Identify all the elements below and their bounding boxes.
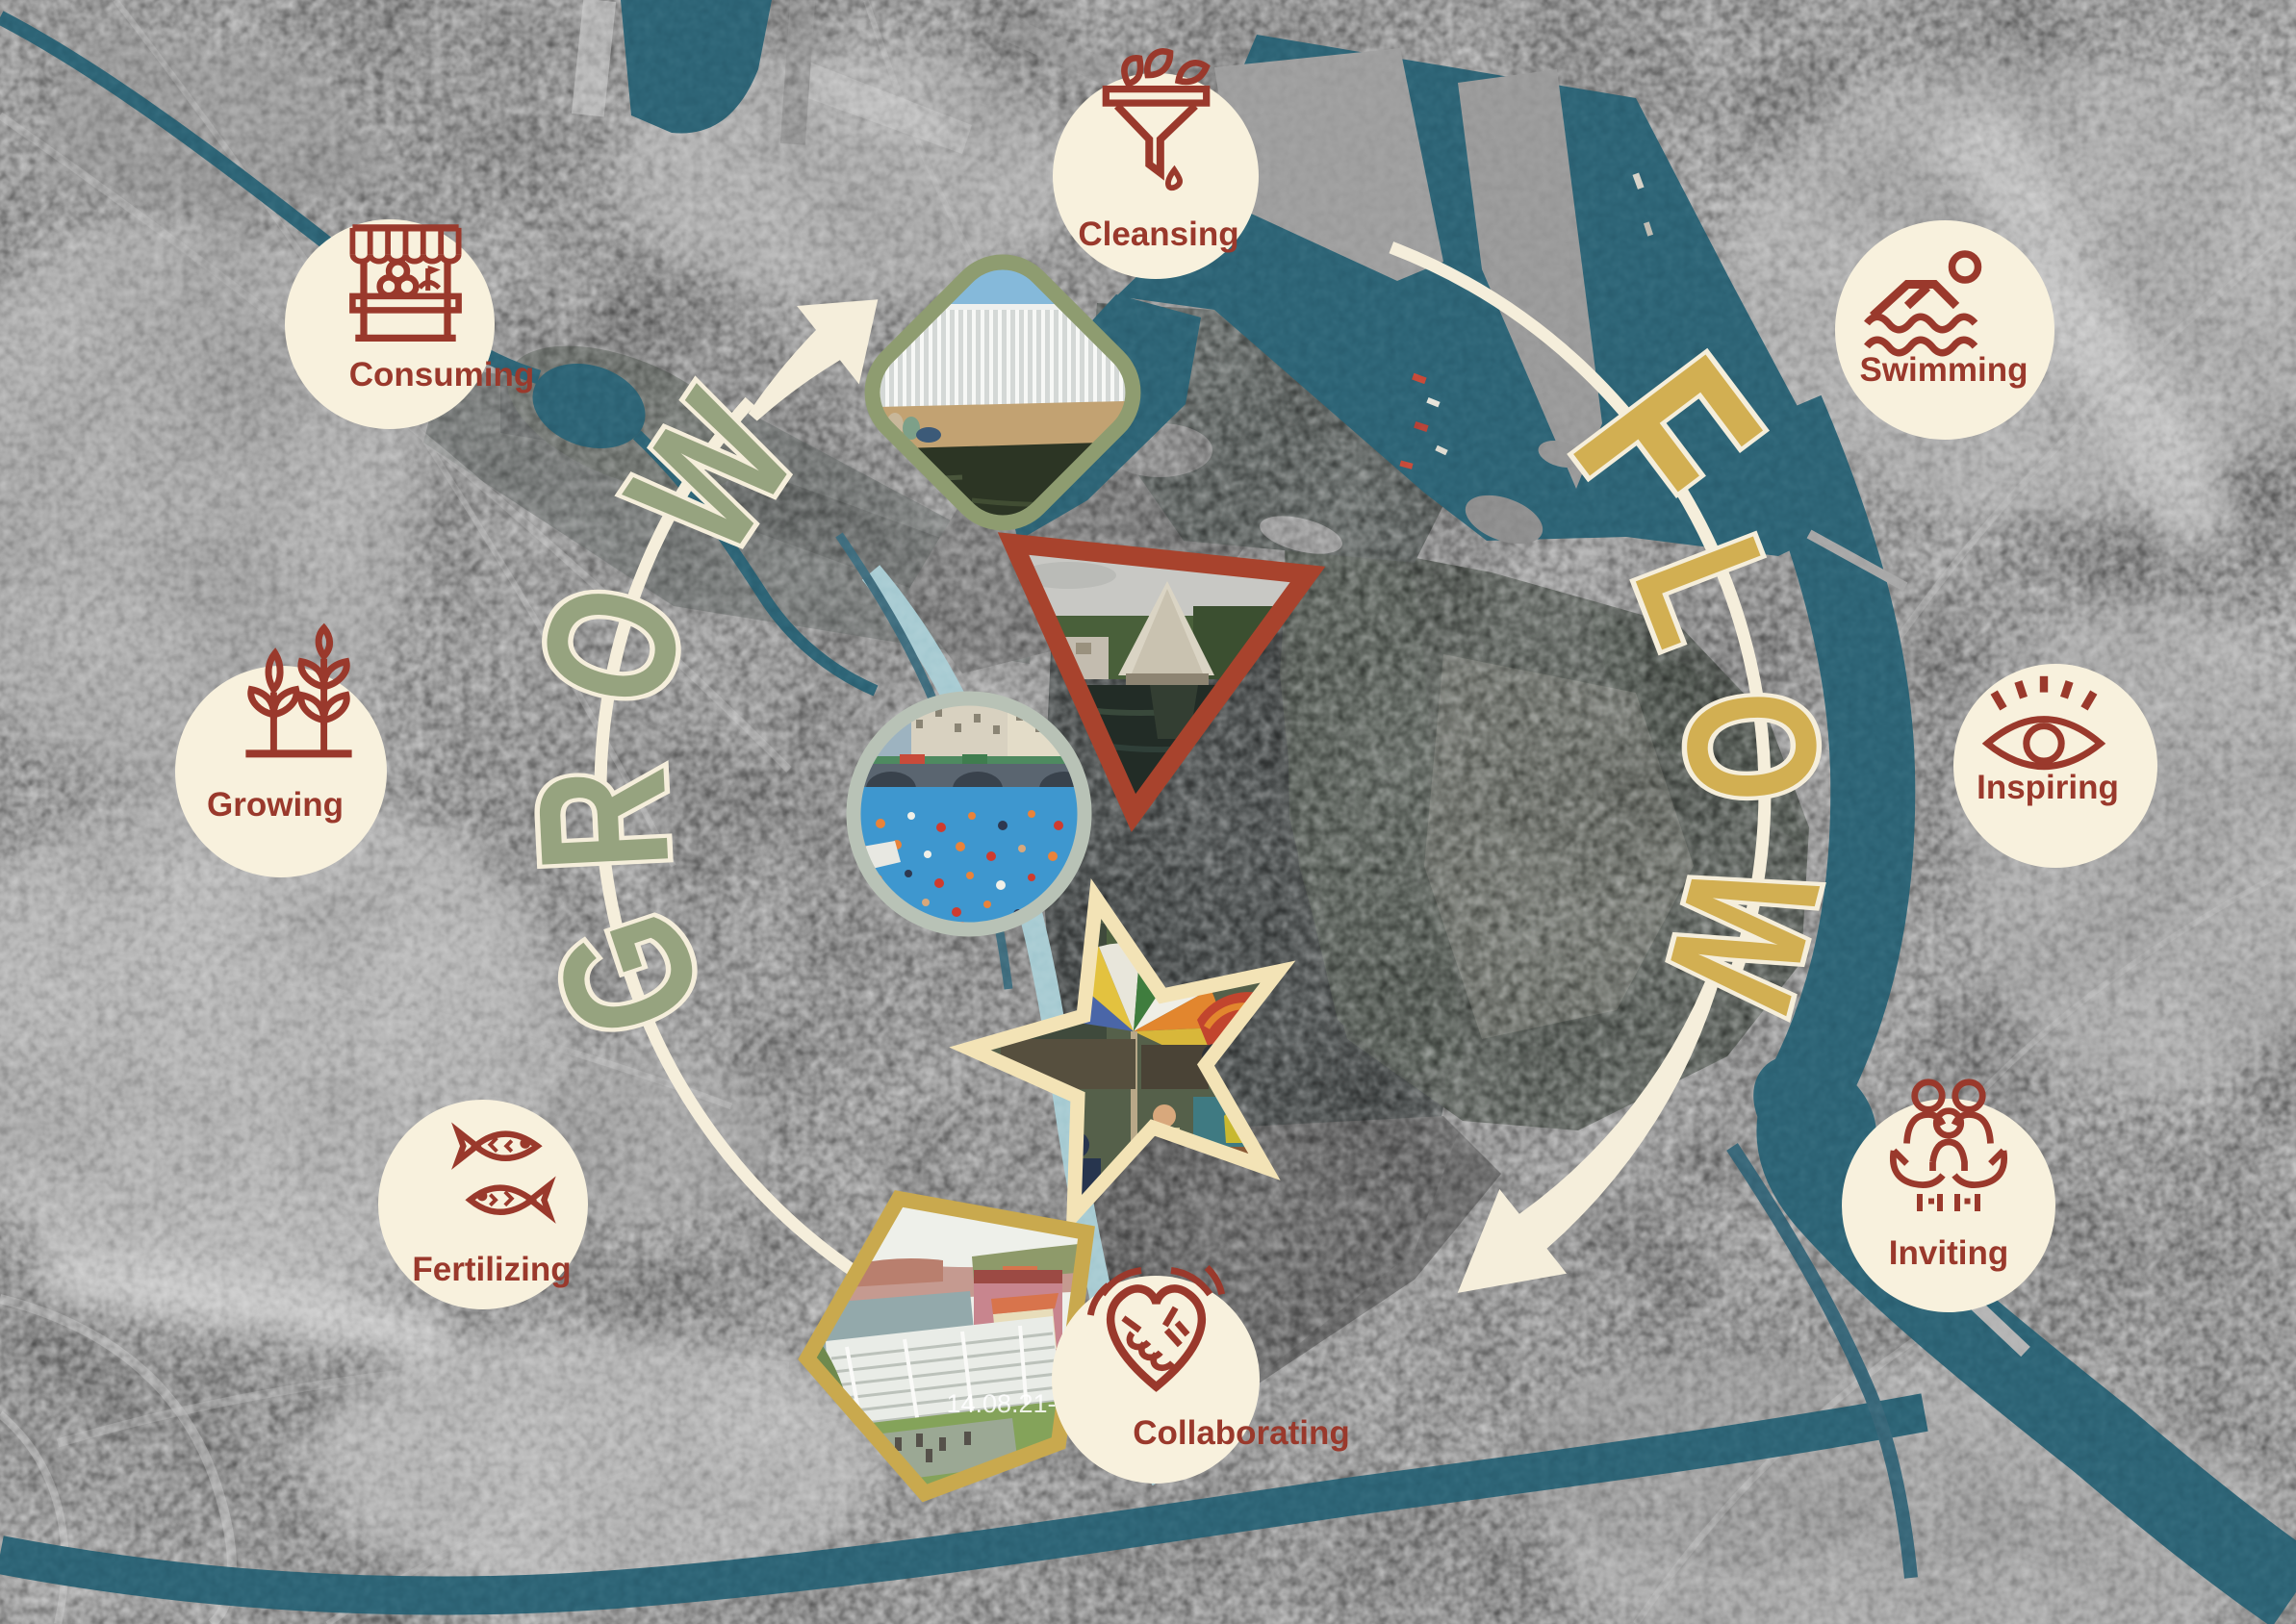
svg-text:Consuming: Consuming xyxy=(349,356,534,393)
svg-text:Fertilizing: Fertilizing xyxy=(412,1251,571,1288)
svg-text:14.08.21-1: 14.08.21-1 xyxy=(946,1389,1070,1418)
svg-text:R: R xyxy=(499,763,708,875)
svg-text:Growing: Growing xyxy=(207,786,344,824)
svg-text:Swimming: Swimming xyxy=(1859,351,2028,389)
svg-text:Inspiring: Inspiring xyxy=(1977,769,2119,806)
svg-text:Inviting: Inviting xyxy=(1889,1234,2008,1272)
svg-text:Collaborating: Collaborating xyxy=(1133,1414,1350,1452)
svg-text:Cleansing: Cleansing xyxy=(1078,216,1238,253)
svg-text:O: O xyxy=(1645,684,1857,810)
